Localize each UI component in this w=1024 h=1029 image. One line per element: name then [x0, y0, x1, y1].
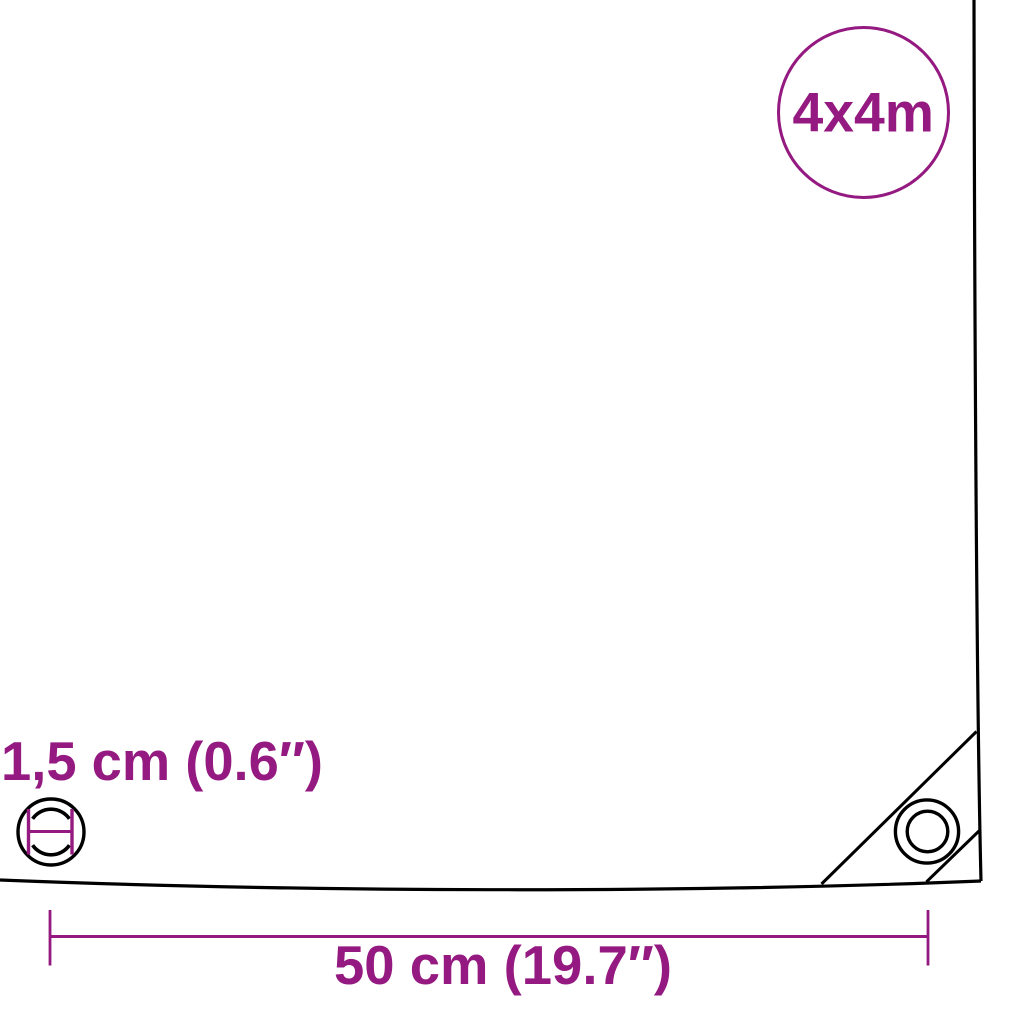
svg-text:1,5 cm (0.6″): 1,5 cm (0.6″) — [1, 730, 323, 792]
svg-text:50 cm (19.7″): 50 cm (19.7″) — [334, 934, 672, 996]
svg-text:4x4m: 4x4m — [793, 81, 935, 144]
